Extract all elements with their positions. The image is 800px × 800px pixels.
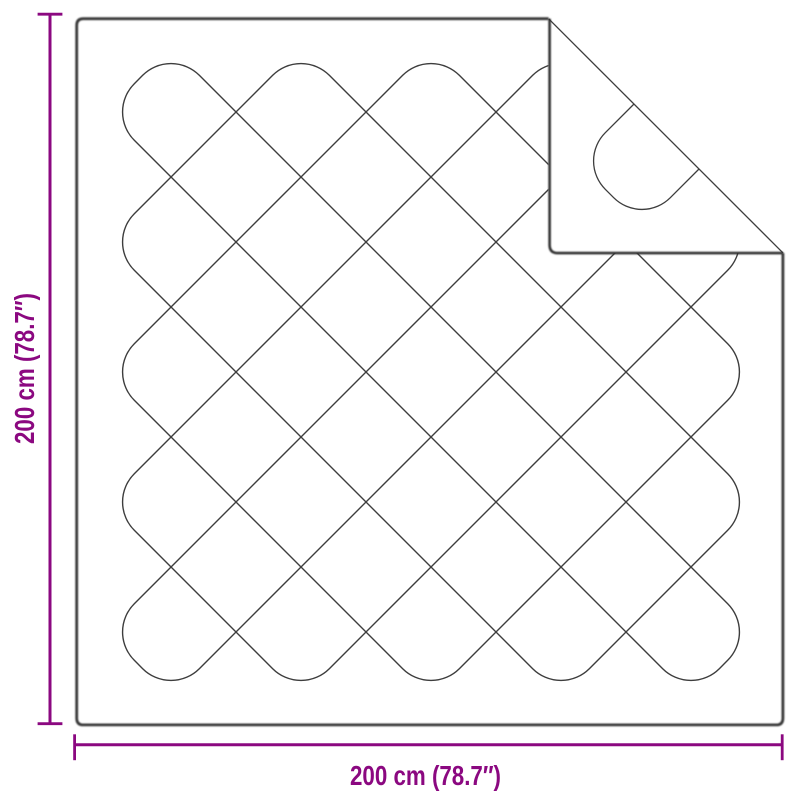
svg-text:200 cm (78.7″): 200 cm (78.7″): [350, 760, 501, 791]
svg-text:200 cm (78.7″): 200 cm (78.7″): [9, 293, 40, 444]
